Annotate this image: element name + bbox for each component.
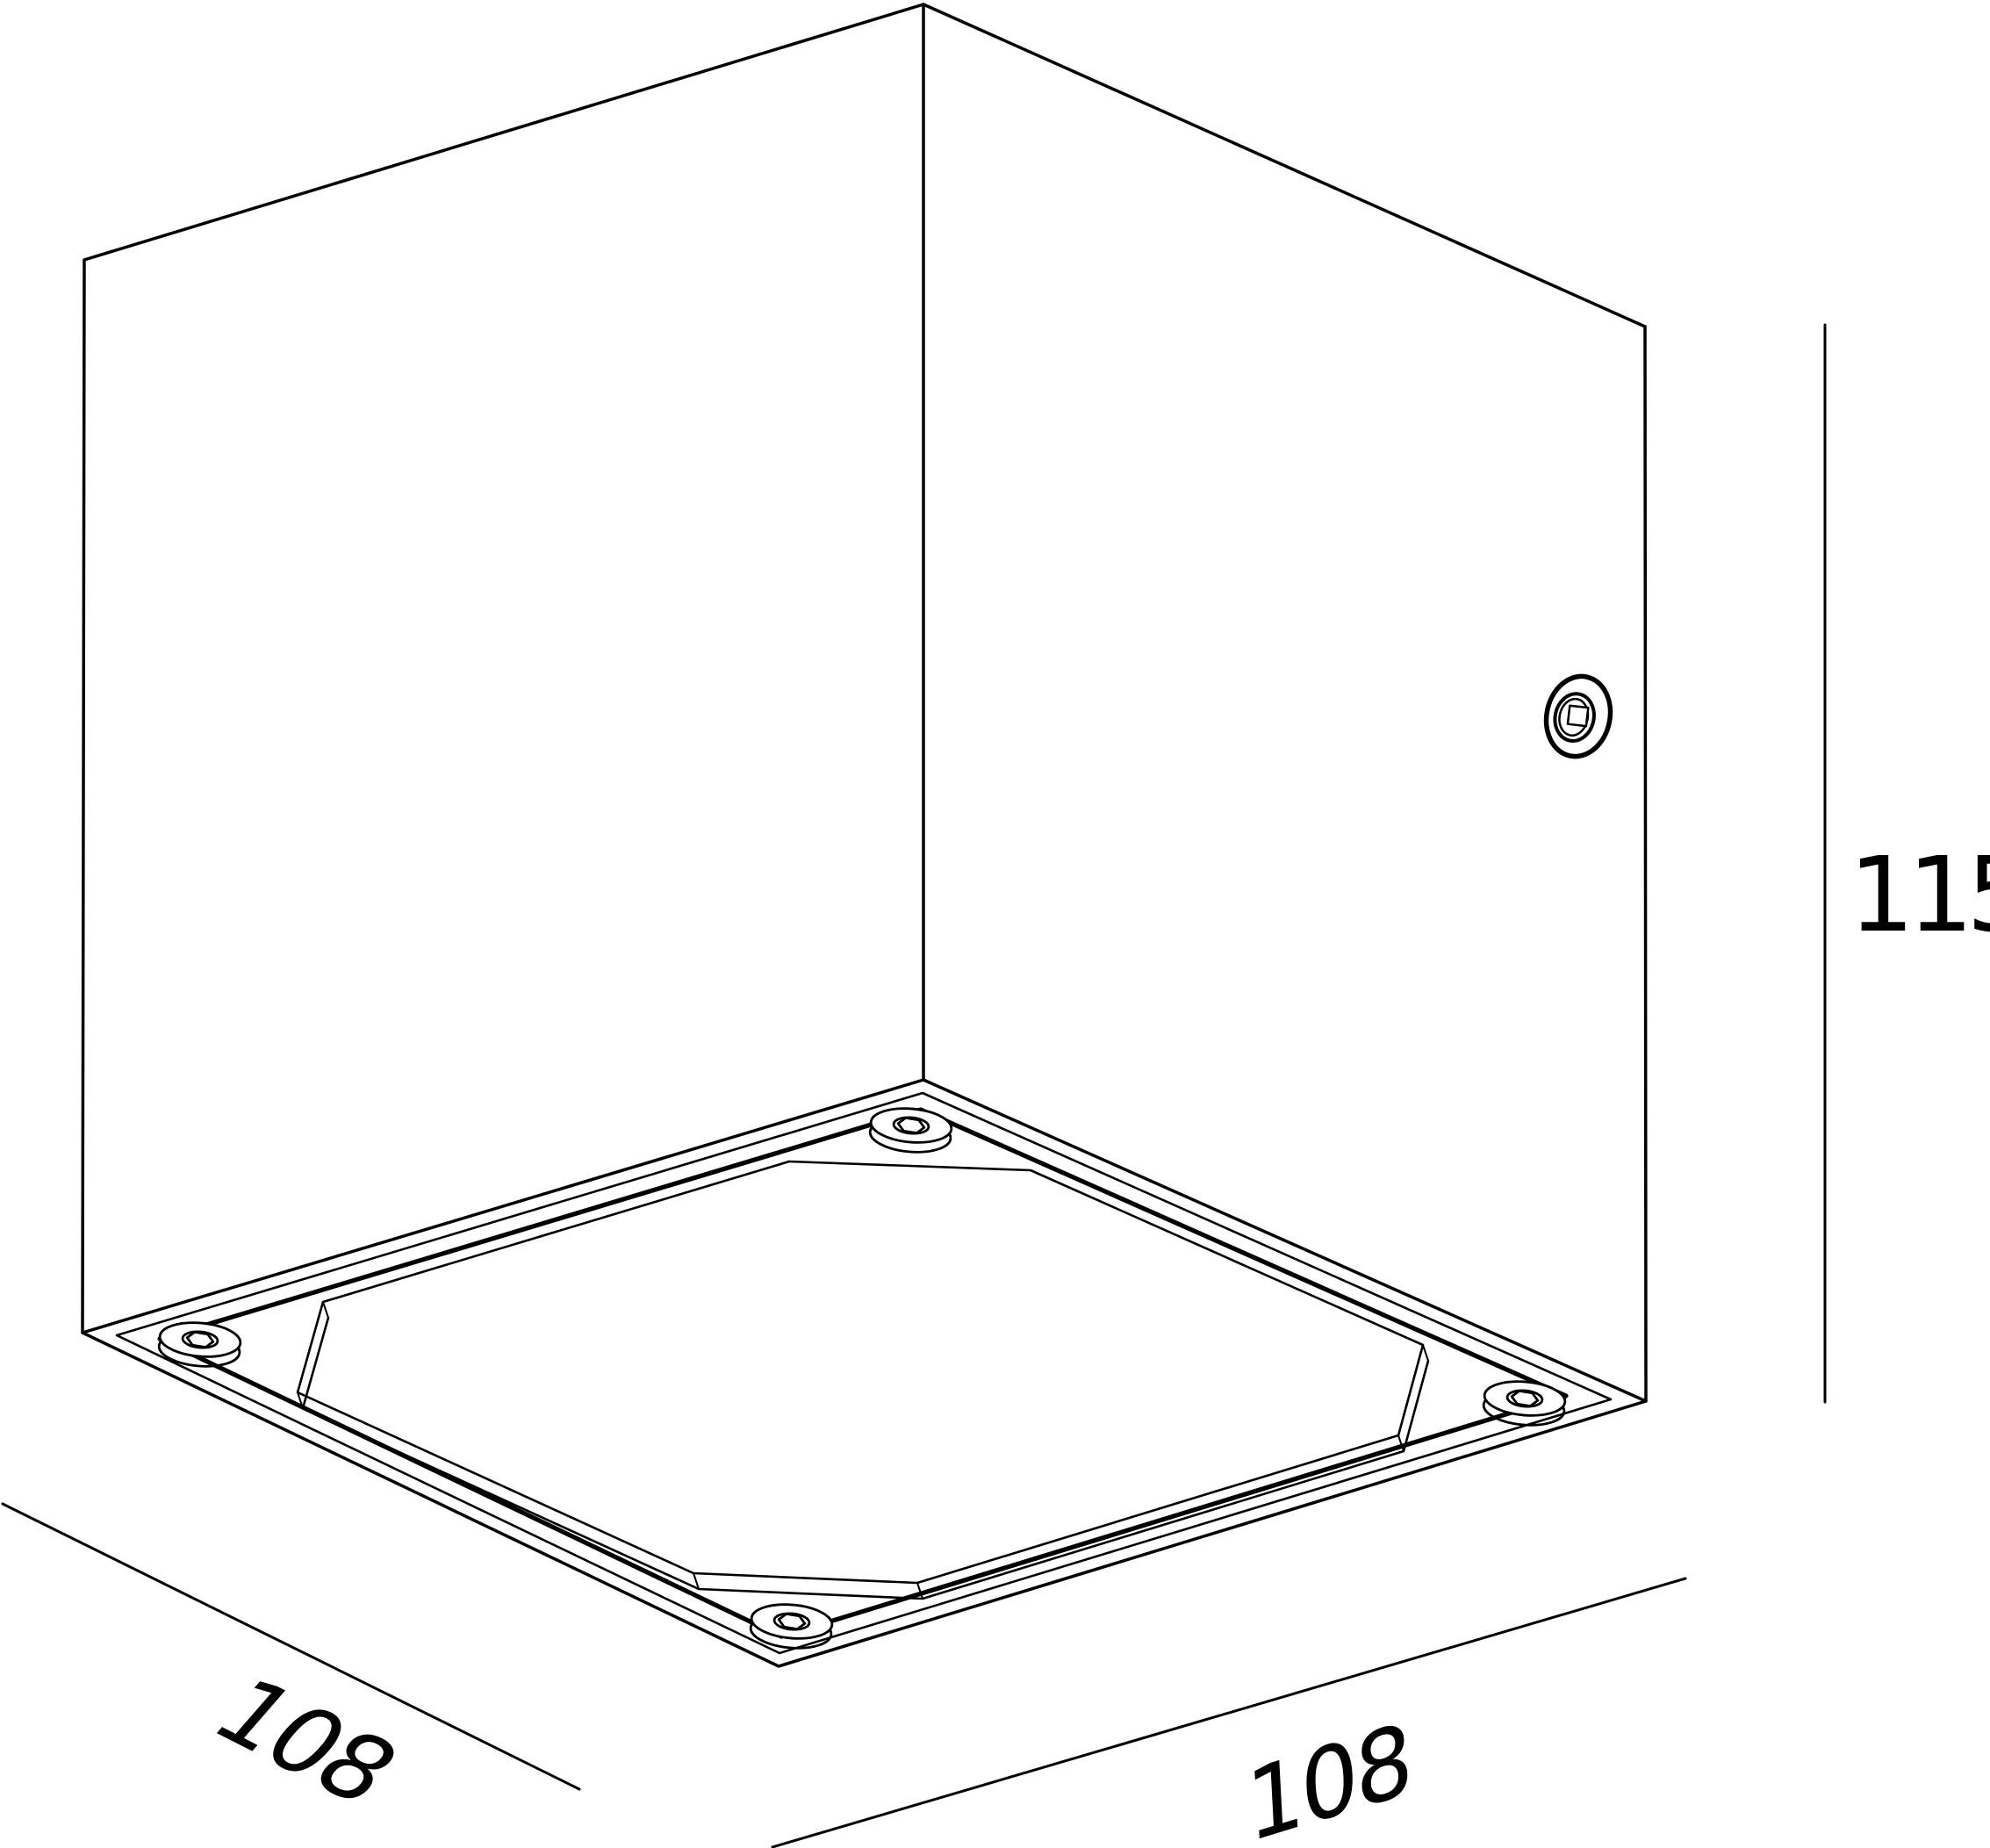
cube-left-vertical-edge <box>83 260 84 1333</box>
side-fixing-screw <box>1539 671 1618 763</box>
diffuser-panel-thickness-edge <box>303 1318 1428 1599</box>
gasket-groove <box>160 1110 1566 1636</box>
dimension-line-width-right <box>772 1578 1685 1847</box>
dimension-label-width-right: 108 <box>1244 1701 1412 1848</box>
screw-head-top <box>751 1601 834 1642</box>
screw-head-top <box>870 1105 953 1146</box>
screw-head-top <box>1484 1378 1567 1419</box>
cube-right-vertical-edge <box>1645 327 1646 1401</box>
bottom-face <box>83 1080 1646 1666</box>
cube-top-left-edge <box>84 4 923 260</box>
dimension-width-left: 108 <box>3 1504 579 1823</box>
panel-thickness-connector <box>1423 1345 1428 1361</box>
cube-top-right-edge <box>923 4 1645 327</box>
dimension-height-right: 115 <box>1825 325 1990 1402</box>
gland-center-socket <box>1566 704 1590 728</box>
bottom-face-outline <box>83 1080 1646 1666</box>
technical-drawing: 108 108 115 <box>0 0 1990 1848</box>
dimension-width-right: 108 <box>772 1578 1685 1848</box>
panel-thickness-connector <box>323 1302 328 1318</box>
cube-outline <box>83 4 1646 1401</box>
dimension-label-height: 115 <box>1849 834 1990 955</box>
screw-head-top <box>159 1319 242 1360</box>
corner-screw-top <box>869 1105 953 1155</box>
dimension-label-width-left: 108 <box>191 1659 418 1823</box>
corner-screw-right <box>1483 1378 1567 1428</box>
drawing-canvas: 108 108 115 <box>0 0 1990 1848</box>
bottom-face-inset-line <box>117 1093 1611 1653</box>
